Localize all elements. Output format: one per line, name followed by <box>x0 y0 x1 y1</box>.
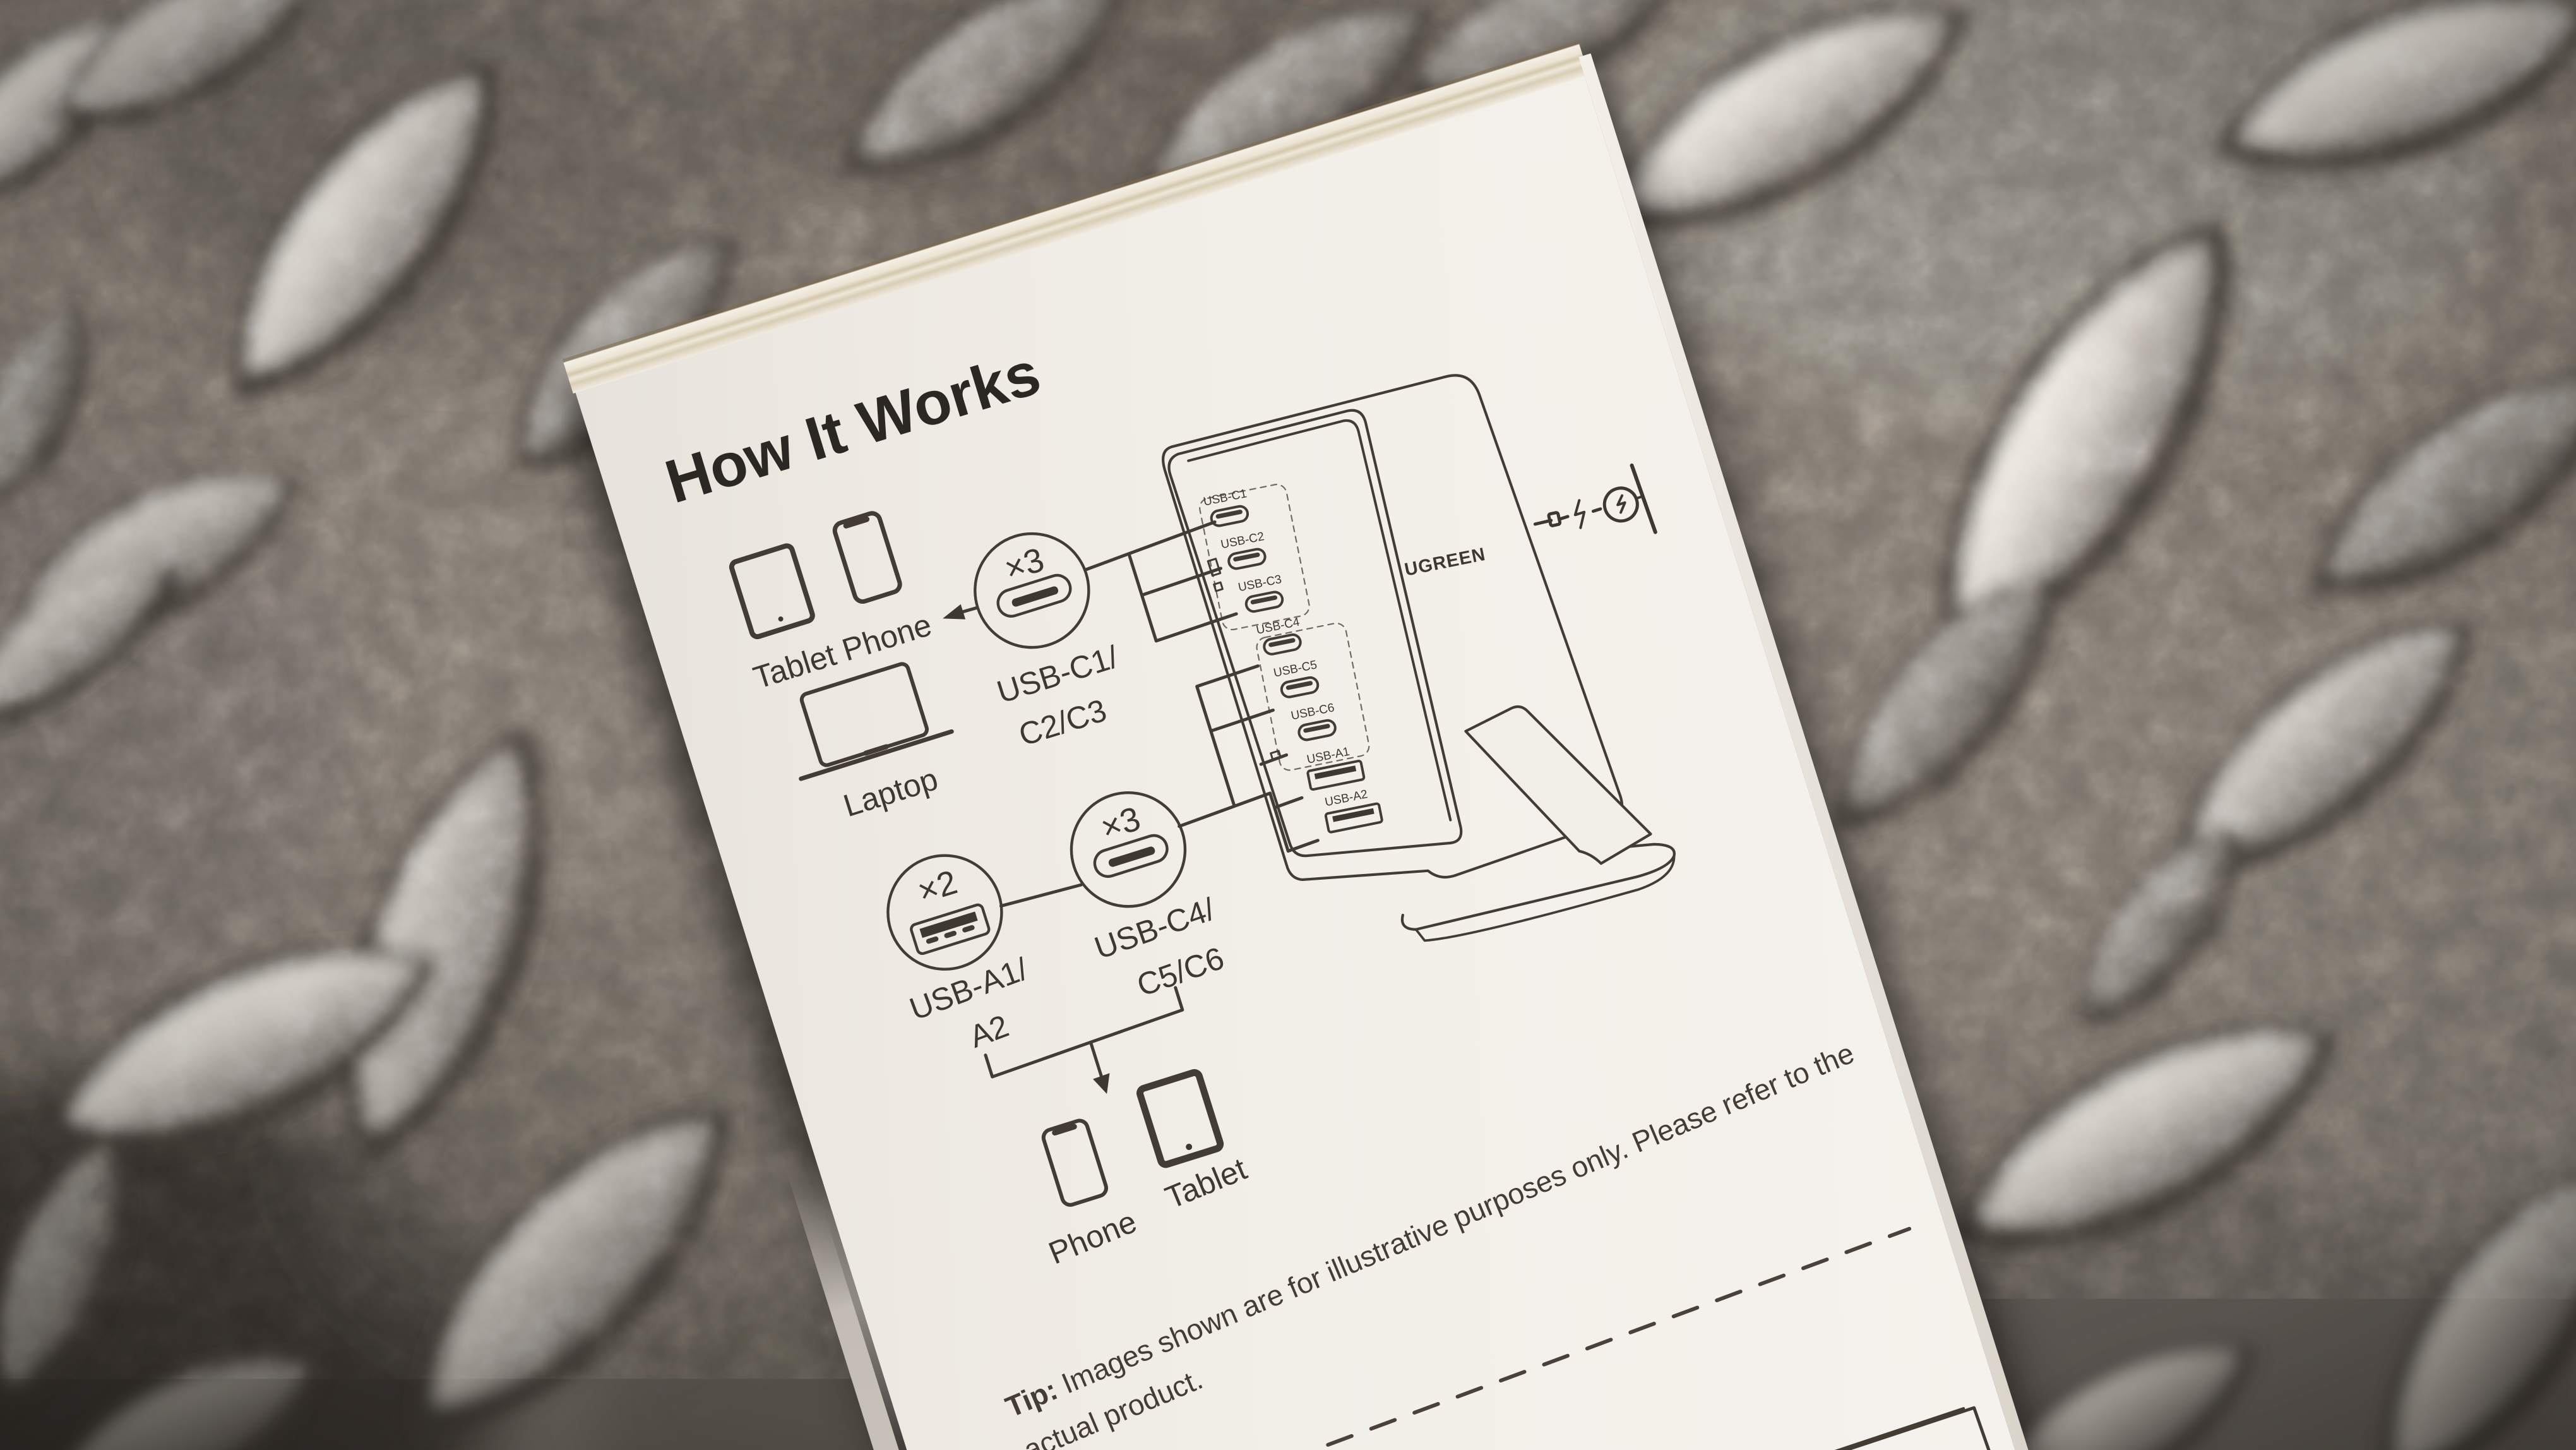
svg-text:Laptop: Laptop <box>839 761 942 824</box>
svg-text:UGREEN: UGREEN <box>1403 544 1488 580</box>
svg-text:Phone: Phone <box>1044 1204 1142 1271</box>
svg-text:How It Works: How It Works <box>658 338 1048 516</box>
svg-text:A2: A2 <box>965 1008 1013 1055</box>
svg-text:×3: ×3 <box>1000 541 1049 589</box>
svg-text:USB-C1/: USB-C1/ <box>993 639 1122 710</box>
svg-text:×2: ×2 <box>913 863 962 911</box>
